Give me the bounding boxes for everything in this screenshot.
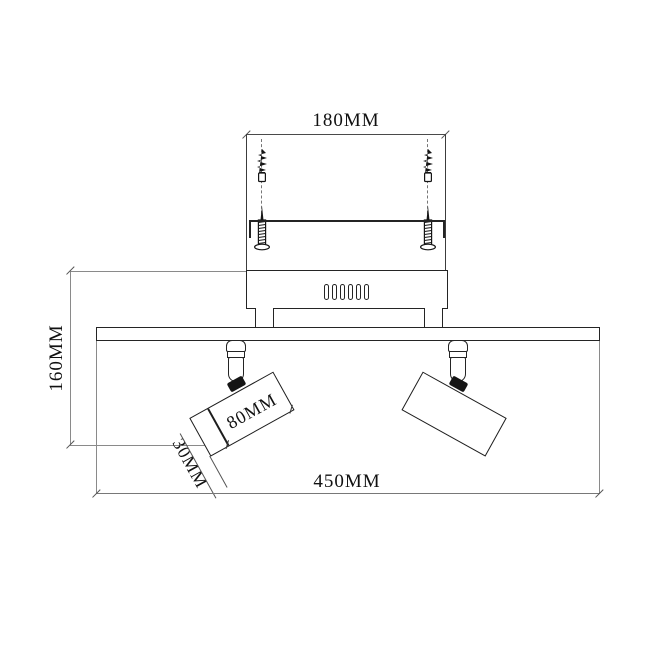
stem-joint-left [225,340,249,396]
dim-line-160 [70,271,71,445]
dim-ext-line-top [70,271,246,272]
canopy-foot [255,308,274,328]
mounting-bar [96,327,600,341]
mounting-bracket-end [249,220,251,238]
vent-slot [348,284,353,300]
dim-line-180 [247,134,446,135]
vent-slot [340,284,345,300]
vent-slot [364,284,369,300]
mounting-bracket-end [443,220,445,238]
vent-slot [324,284,329,300]
dim-tick-icon [289,405,293,414]
dim-ext-line-right [599,341,600,494]
wall-anchor-icon [252,149,272,185]
stem-joint-right [447,340,471,396]
wall-anchor-icon [418,149,438,185]
dim-label-bracket-width: 180MM [247,110,445,132]
dim-line-450 [96,493,600,494]
vent-slot [332,284,337,300]
dim-ext-line-left [96,341,97,494]
spotlight-dimension-drawing: 180MM [0,0,650,650]
vent-slot [356,284,361,300]
mounting-screw-icon [254,206,270,256]
dim-label-fixture-height: 160MM [46,297,68,419]
mounting-screw-icon [420,206,436,256]
canopy-foot [424,308,443,328]
dim-ext-line-left [246,134,247,271]
mounting-bracket [249,220,445,222]
stem-clamp [449,376,469,393]
dim-ext-line-right [445,134,446,271]
canopy-box [246,270,448,309]
dim-label-fixture-width: 450MM [277,471,417,493]
